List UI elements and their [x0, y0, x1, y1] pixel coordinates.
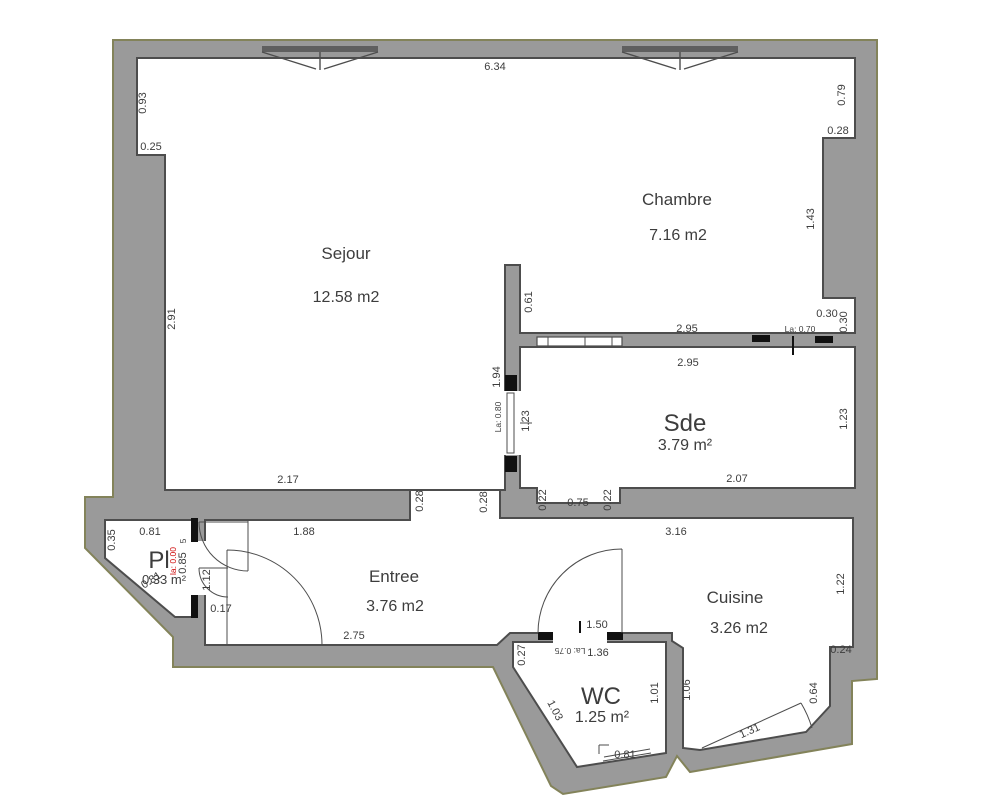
dim-cuisine-right: 1.22 [835, 573, 847, 594]
dim-sde-bottom: 2.07 [726, 473, 747, 485]
room-label-entree: Entree [369, 567, 419, 586]
dim-partition-mid: 1.94 [491, 366, 503, 387]
dim-pl-right-lower: 0.17 [210, 603, 231, 615]
dim-sejour-bottom: 2.17 [277, 474, 298, 486]
dim-door-chambre: La: 0.70 [785, 324, 816, 334]
dim-cuisine-wall-top: 3.16 [665, 526, 686, 538]
dim-left-step: 0.25 [140, 141, 161, 153]
room-label-sejour: Sejour [321, 244, 370, 263]
room-area-sejour: 12.58 m2 [313, 289, 380, 306]
dim-entree-top: 1.88 [293, 526, 314, 538]
dim-entree-bottom: 2.75 [343, 630, 364, 642]
dim-niche-right: 0.22 [602, 489, 614, 510]
dim-sde-left: 1.23 [520, 410, 532, 431]
dim-wall-sde-bottom: 2.95 [677, 357, 698, 369]
dim-chambre-right-upper: 0.79 [836, 84, 848, 105]
dim-wc-width: 1.36 [587, 647, 608, 659]
dim-wc-right-inner: 1.01 [649, 682, 661, 703]
floorplan-page: Sejour 12.58 m2 Chambre 7.16 m2 Sde 3.79… [0, 0, 991, 812]
dim-chambre-notch-h: 0.30 [816, 308, 837, 320]
dim-niche-left: 0.22 [537, 489, 549, 510]
room-area-wc: 1.25 m² [575, 709, 630, 726]
glazing-icon [537, 337, 622, 346]
dim-wc-window: 0.81 [614, 749, 635, 761]
dim-sejour-wall-end: 0.28 [414, 490, 426, 511]
room-label-chambre: Chambre [642, 190, 712, 209]
door-jamb [191, 595, 198, 618]
door-jamb [815, 336, 833, 343]
room-area-entree: 3.76 m2 [366, 598, 424, 615]
dim-left-upper: 0.93 [137, 92, 149, 113]
room-label-wc: WC [581, 683, 621, 710]
room-area-cuisine: 3.26 m2 [710, 620, 768, 637]
floorplan-canvas: Sejour 12.58 m2 Chambre 7.16 m2 Sde 3.79… [0, 0, 991, 812]
room-area-chambre: 7.16 m2 [649, 227, 707, 244]
dim-sde-wall-start: 0.28 [478, 491, 490, 512]
door-jamb [607, 632, 623, 640]
room-area-sde: 3.79 m² [658, 437, 713, 454]
dim-wc-top: 1.50 [586, 619, 607, 631]
room-label-sde: Sde [664, 410, 707, 437]
door-jamb [191, 518, 198, 542]
dim-chambre-right-lower: 1.43 [805, 208, 817, 229]
dim-sde-right: 1.23 [838, 408, 850, 429]
dim-door-sde: La: 0.80 [493, 401, 503, 432]
dim-partition-top: 0.61 [523, 291, 535, 312]
dim-pl-door-red: la: 0.00 [168, 547, 178, 575]
dim-chambre-step: 0.28 [827, 125, 848, 137]
dim-cuisine-right-lower: 0.64 [808, 682, 820, 703]
dim-niche-width: 0.75 [567, 497, 588, 509]
door-jamb [752, 335, 770, 342]
room-label-pl: Pl [148, 547, 169, 574]
door-jamb [505, 456, 517, 472]
dim-cuisine-step: 0.24 [830, 644, 851, 656]
door-jamb [505, 375, 517, 391]
dim-chambre-notch-v: 0.30 [838, 311, 850, 332]
dim-top-width: 6.34 [484, 61, 505, 73]
dim-pl-right-upper: 0.85 [177, 552, 189, 573]
dim-pl-left: 0.35 [106, 529, 118, 550]
dim-sejour-left: 2.91 [166, 308, 178, 329]
dim-wc-left-step: 0.27 [516, 644, 528, 665]
sde-door-leaf [507, 393, 514, 453]
dim-pl-right-upper-small: 5 [178, 538, 188, 543]
dim-wall-sde-top: 2.95 [676, 323, 697, 335]
door-jamb [538, 632, 553, 640]
dim-door-wc: La: 0.75 [554, 646, 585, 656]
room-label-cuisine: Cuisine [707, 588, 764, 607]
dim-wc-right-outer: 1.06 [681, 679, 693, 700]
dim-pl-top: 0.81 [139, 526, 160, 538]
dim-pl-right-mid: 1.12 [201, 569, 213, 590]
